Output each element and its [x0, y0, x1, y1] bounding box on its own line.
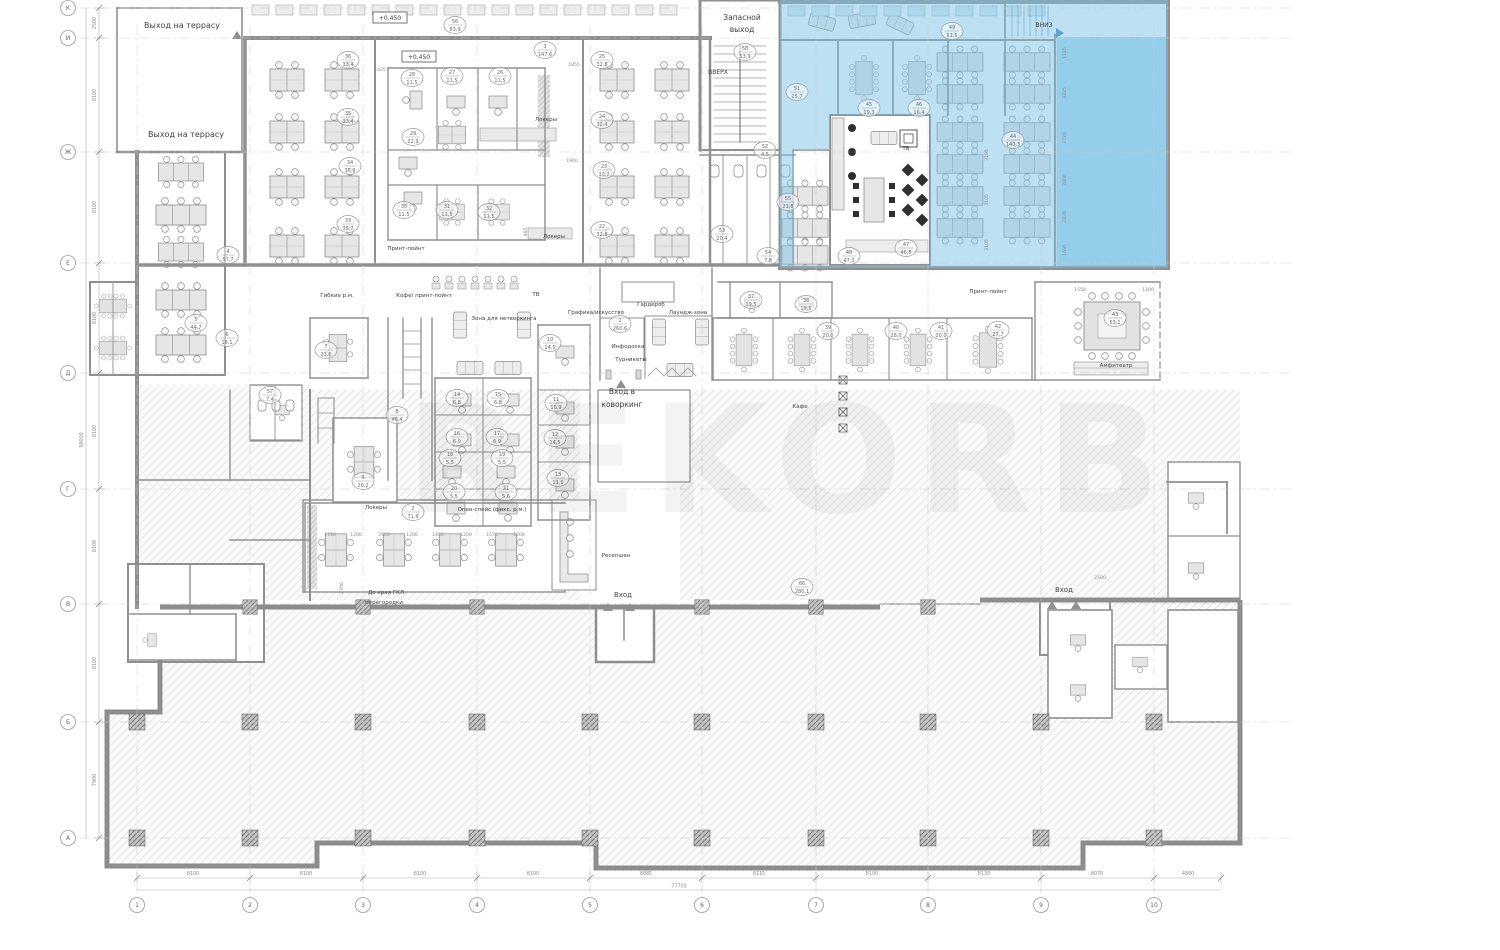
dimension-text: 8100: [414, 871, 426, 877]
room-number: 54: [765, 250, 771, 256]
annotation-label: Графика/искусство: [568, 310, 625, 316]
room-tag: 618,1: [216, 330, 238, 347]
room-tag: 5853,9: [734, 44, 756, 61]
room-tag: 457,7: [217, 247, 239, 264]
room-tag: 2711,5: [441, 68, 463, 85]
room-area: 11,5: [483, 214, 494, 220]
room-area: 83,9: [449, 27, 460, 33]
room-area: 11,5: [494, 78, 505, 84]
annotation-label: перегородки: [365, 600, 403, 606]
grid-bubble-label: К: [66, 5, 71, 12]
annotation-label: Вход: [1055, 586, 1073, 594]
grid-bubble-label: 8: [926, 902, 930, 909]
inline-dimension: 1695: [1062, 244, 1068, 256]
room-area: 51,5: [946, 33, 957, 39]
room-tag: 3633,4: [337, 52, 359, 69]
room-area: 16,4: [913, 110, 924, 116]
room-tag: 3147,6: [534, 42, 556, 59]
floor-plan-svg: 8100810081008100808581158100813080704800…: [0, 0, 1500, 950]
grid-bubble-label: 2: [248, 902, 252, 909]
room-tag: 2333,7: [593, 162, 615, 179]
annotation-label: ТВ: [531, 292, 539, 298]
dimension-text: 8100: [92, 540, 98, 552]
room-number: 36: [345, 54, 351, 60]
room-tag: 5320,4: [711, 226, 733, 243]
inline-dimension: 1200: [350, 532, 362, 538]
room-tag: 3719,5: [740, 292, 762, 309]
room-area: 11,5: [441, 212, 452, 218]
room-area: 21,8: [782, 204, 793, 210]
room-number: 41: [938, 325, 944, 331]
room-tag: 5683,9: [444, 17, 466, 34]
room-number: 26: [497, 70, 503, 76]
room-area: 18,1: [221, 340, 232, 346]
room-number: 44: [1010, 134, 1016, 140]
room-area: 27,7: [992, 332, 1003, 338]
room-area: 260,6: [613, 326, 627, 332]
overall-height-dim: 59000: [79, 432, 85, 447]
room-tag: 544,7: [185, 315, 207, 332]
room-tag: 2432,4: [591, 112, 613, 129]
room-area: 46,4: [391, 417, 402, 423]
room-area: 53,1: [1109, 320, 1120, 326]
room-tag: 4353,1: [1104, 310, 1126, 327]
inline-dimension: 3225: [1062, 87, 1068, 99]
room-area: 140,3: [1006, 142, 1020, 148]
inline-dimension: 2500: [1094, 575, 1106, 581]
room-area: 20,0: [822, 333, 833, 339]
room-number: 27: [449, 70, 455, 76]
inline-dimension: 1960: [566, 158, 578, 164]
grid-bubble-label: 1: [135, 902, 139, 909]
room-number: 24: [599, 114, 605, 120]
room-number: 40: [893, 325, 899, 331]
annotation-label: Локеры: [365, 505, 387, 511]
room-area: 11,5: [446, 78, 457, 84]
inline-dimension: 3105: [984, 194, 990, 206]
annotation-label: +0,450: [408, 54, 430, 61]
room-area: 46,8: [900, 250, 911, 256]
grid-bubble-label: Д: [66, 370, 71, 377]
room-tag: 3435,9: [339, 158, 361, 175]
room-tag: 577,4: [259, 387, 281, 404]
room-number: 47: [903, 242, 909, 248]
room-number: 1: [618, 318, 621, 324]
grid-bubble-label: 3: [361, 902, 365, 909]
room-tag: 5125,7: [786, 84, 808, 101]
room-area: 28,0: [890, 333, 901, 339]
room-number: 31: [444, 204, 450, 210]
room-number: 25: [599, 54, 605, 60]
dimension-text: 8085: [640, 871, 652, 877]
room-tag: 1260,6: [609, 316, 631, 333]
annotation-label: выход: [730, 25, 755, 34]
room-number: 46: [916, 102, 922, 108]
room-tag: 3211,5: [478, 204, 500, 221]
annotation-label: ВВЕРХ: [708, 69, 728, 76]
room-number: 42: [995, 324, 1001, 330]
room-area: 35,9: [344, 168, 355, 174]
dimension-text: 8100: [92, 657, 98, 669]
room-area: 32,4: [596, 122, 607, 128]
annotation-label: ТВ: [901, 146, 909, 152]
room-tag: 3111,5: [436, 202, 458, 219]
room-tag: 2232,8: [591, 222, 613, 239]
room-tag: 547,8: [757, 248, 779, 265]
annotation-label: Принт-пойнт: [387, 245, 425, 252]
annotation-label: Локеры: [543, 234, 565, 240]
annotation-label: Вход: [614, 591, 632, 599]
room-area: 47,3: [843, 258, 854, 264]
annotation-label: До края ГКЛ: [368, 590, 404, 596]
room-number: 10: [547, 337, 553, 343]
room-number: 30: [401, 204, 407, 210]
room-number: 3: [543, 44, 546, 50]
inline-dimension: 1558: [1074, 287, 1086, 293]
annotation-label: Выход на террасу: [148, 130, 224, 139]
room-area: 19,3: [863, 110, 874, 116]
annotation-label: Инфодоска: [612, 344, 645, 350]
inline-dimension: 1200: [1142, 287, 1154, 293]
annotation-label: +0,450: [379, 15, 401, 22]
room-number: 56: [452, 19, 458, 25]
room-number: 22: [599, 224, 605, 230]
room-area: 11,5: [406, 80, 417, 86]
inline-dimension: 3230: [1062, 211, 1068, 223]
room-tag: 3335,7: [337, 216, 359, 233]
room-tag: 3011,5: [393, 202, 415, 219]
annotation-label: Локеры: [535, 117, 557, 123]
room-area: 25,7: [791, 94, 802, 100]
room-tag: 2532,8: [591, 52, 613, 69]
room-area: 7,4: [266, 397, 274, 403]
room-tag: 2922,9: [402, 129, 424, 146]
room-area: 32,8: [596, 232, 607, 238]
annotation-label: Гардероб: [637, 302, 665, 308]
room-tag: 524,5: [754, 142, 776, 159]
room-tag: 3819,5: [795, 296, 817, 313]
annotation-label: Зона для нетворкинга: [471, 316, 536, 322]
room-area: 22,9: [407, 139, 418, 145]
dimension-text: 8100: [527, 871, 539, 877]
inline-dimension: 965: [523, 228, 529, 237]
overall-width-dim: 77700: [671, 884, 686, 890]
room-area: 33,4: [342, 62, 353, 68]
room-number: 35: [345, 111, 351, 117]
dimension-text: 8100: [300, 871, 312, 877]
grid-bubble-label: Е: [66, 260, 70, 267]
dimension-text: 8100: [92, 425, 98, 437]
annotation-label: Выход на террасу: [144, 21, 220, 30]
annotation-label: Турникеты: [614, 357, 647, 363]
room-area: 35,7: [342, 226, 353, 232]
annotation-label: Лаундж-зона: [669, 310, 707, 316]
room-area: 57,7: [222, 257, 233, 263]
dimension-text: 7900: [92, 774, 98, 786]
room-area: 44,7: [190, 325, 201, 331]
dimension-text: 8100: [92, 312, 98, 324]
annotation-label: ВНИЗ: [1036, 22, 1053, 29]
room-tag: 4847,3: [838, 248, 860, 265]
room-area: 280,1: [795, 589, 809, 595]
grid-bubble-label: 10: [1150, 902, 1158, 909]
grid-bubble-label: 9: [1039, 902, 1043, 909]
dimension-text: 8100: [187, 871, 199, 877]
room-area: 19,5: [745, 302, 756, 308]
room-number: 39: [825, 325, 831, 331]
highlight-zone-blue-room: [1057, 37, 1166, 266]
room-area: 23,6: [320, 352, 331, 358]
dimension-text: 4800: [1182, 871, 1194, 877]
room-tag: 5521,8: [777, 194, 799, 211]
room-number: 38: [803, 298, 809, 304]
room-area: 32,8: [596, 62, 607, 68]
room-tag: 4951,5: [941, 23, 963, 40]
room-area: 26,2: [357, 483, 368, 489]
room-tag: 4616,4: [908, 100, 930, 117]
inline-dimension: 2300: [339, 582, 345, 594]
dimension-text: 8115: [753, 871, 765, 877]
room-area: 14,5: [544, 345, 555, 351]
room-tag: 4227,7: [987, 322, 1009, 339]
room-area: 4,5: [761, 152, 769, 158]
grid-bubble-label: Б: [66, 719, 70, 726]
annotation-label: Амфитеатр: [1100, 363, 1133, 369]
room-number: 51: [794, 86, 800, 92]
dimension-text: 8100: [92, 89, 98, 101]
room-number: 5: [194, 317, 197, 323]
room-number: 45: [866, 102, 872, 108]
room-number: 66: [799, 581, 805, 587]
room-number: 37: [748, 294, 754, 300]
room-number: 33: [345, 218, 351, 224]
room-number: 53: [719, 228, 725, 234]
inline-dimension: 1185: [1062, 47, 1068, 59]
room-tag: 3533,4: [337, 109, 359, 126]
watermark: REKORB: [406, 374, 1175, 548]
inline-dimension: 3195: [984, 149, 990, 161]
room-number: 49: [949, 25, 955, 31]
room-area: 20,4: [716, 236, 727, 242]
room-number: 57: [267, 389, 273, 395]
room-tag: 926,2: [352, 473, 374, 490]
dimension-text: 8100: [866, 871, 878, 877]
room-tag: 723,6: [315, 342, 337, 359]
room-tag: 4519,3: [858, 100, 880, 117]
room-tag: 2811,5: [401, 70, 423, 87]
dimension-text: 2500: [92, 17, 98, 29]
room-tag: 4746,8: [895, 240, 917, 257]
room-tag: 1014,5: [539, 335, 561, 352]
room-area: 33,7: [598, 172, 609, 178]
room-number: 28: [409, 72, 415, 78]
room-area: 11,5: [398, 212, 409, 218]
grid-bubble-label: 6: [700, 902, 704, 909]
inline-dimension: 3720: [1062, 132, 1068, 144]
room-area: 53,9: [739, 54, 750, 60]
room-area: 20,0: [935, 333, 946, 339]
room-number: 8: [395, 409, 398, 415]
inline-dimension: 2560: [378, 532, 390, 538]
room-tag: 44140,3: [1002, 132, 1024, 149]
room-tag: 66280,1: [791, 579, 813, 596]
room-number: 6: [225, 332, 228, 338]
room-number: 32: [486, 206, 492, 212]
room-number: 7: [324, 344, 327, 350]
annotation-label: Запасной: [723, 13, 761, 22]
room-number: 52: [762, 144, 768, 150]
room-area: 19,5: [800, 306, 811, 312]
room-tag: 3920,0: [817, 323, 839, 340]
room-number: 29: [410, 131, 416, 137]
room-number: 55: [785, 196, 791, 202]
room-tag: 4028,0: [885, 323, 907, 340]
inline-dimension: 1710: [324, 532, 336, 538]
room-number: 4: [226, 249, 229, 255]
inline-dimension: 3105: [984, 239, 990, 251]
dimension-text: 8130: [978, 871, 990, 877]
room-area: 33,4: [342, 119, 353, 125]
room-tag: 2611,5: [489, 68, 511, 85]
room-number: 23: [601, 164, 607, 170]
inline-dimension: 1425: [374, 67, 386, 73]
room-area: 147,6: [538, 52, 552, 58]
grid-bubble-label: Ж: [65, 149, 72, 156]
room-number: 58: [742, 46, 748, 52]
room-number: 48: [846, 250, 852, 256]
inline-dimension: 1855: [568, 62, 580, 68]
annotation-label: Принт-пойнт: [969, 288, 1007, 295]
dimension-text: 8070: [1091, 871, 1103, 877]
grid-bubble-label: 4: [475, 902, 479, 909]
room-number: 43: [1112, 312, 1118, 318]
grid-bubble-label: Г: [66, 486, 70, 493]
annotation-label: Кофе/ принт-пойнт: [396, 292, 453, 299]
grid-bubble-label: 7: [814, 902, 818, 909]
grid-bubble-label: В: [66, 601, 70, 608]
floor-plan-page: 8100810081008100808581158100813080704800…: [0, 0, 1500, 950]
grid-bubble-label: И: [66, 35, 71, 42]
annotation-label: Гибкие р.м.: [320, 293, 354, 299]
annotation-label: Ресепшен: [602, 553, 631, 559]
room-area: 7,8: [764, 258, 772, 264]
room-number: 34: [347, 160, 353, 166]
room-tag: 4120,0: [930, 323, 952, 340]
grid-bubble-label: 5: [588, 902, 592, 909]
dimension-text: 8100: [92, 201, 98, 213]
inline-dimension: 2000: [1062, 174, 1068, 186]
room-number: 9: [361, 475, 364, 481]
